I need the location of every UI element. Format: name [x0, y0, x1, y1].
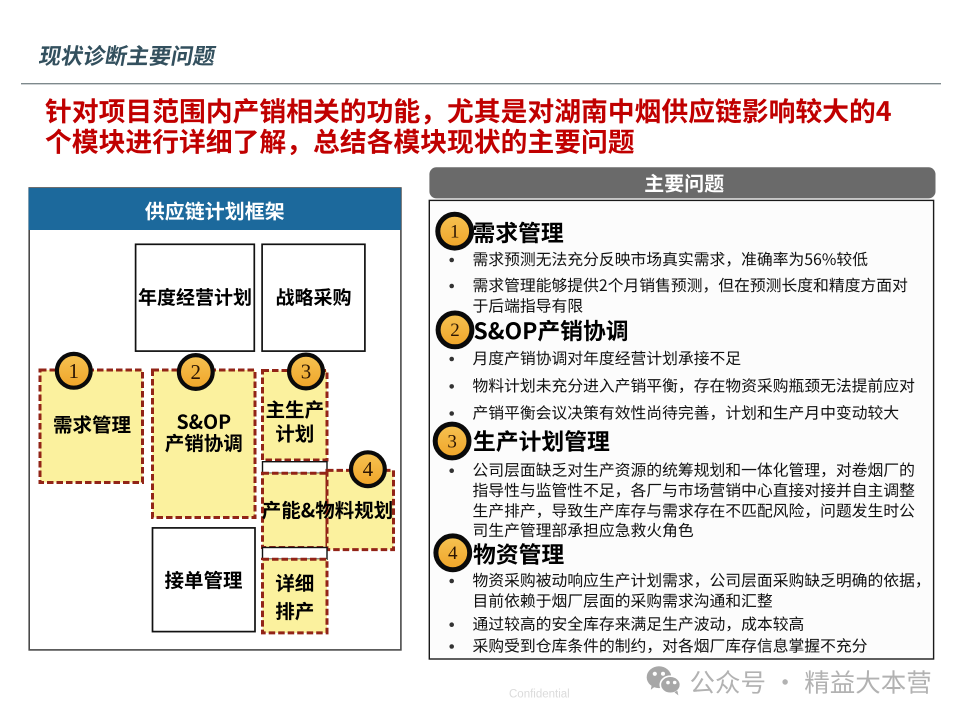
svg-text:Confidential: Confidential	[509, 689, 570, 701]
svg-text:1: 1	[69, 359, 80, 383]
svg-text:3: 3	[301, 360, 312, 384]
svg-text:2: 2	[450, 320, 460, 341]
svg-text:4: 4	[448, 543, 458, 564]
svg-text:1: 1	[450, 222, 460, 243]
svg-text:4: 4	[363, 457, 374, 481]
svg-text:3: 3	[447, 431, 457, 452]
svg-text:2: 2	[191, 360, 202, 384]
